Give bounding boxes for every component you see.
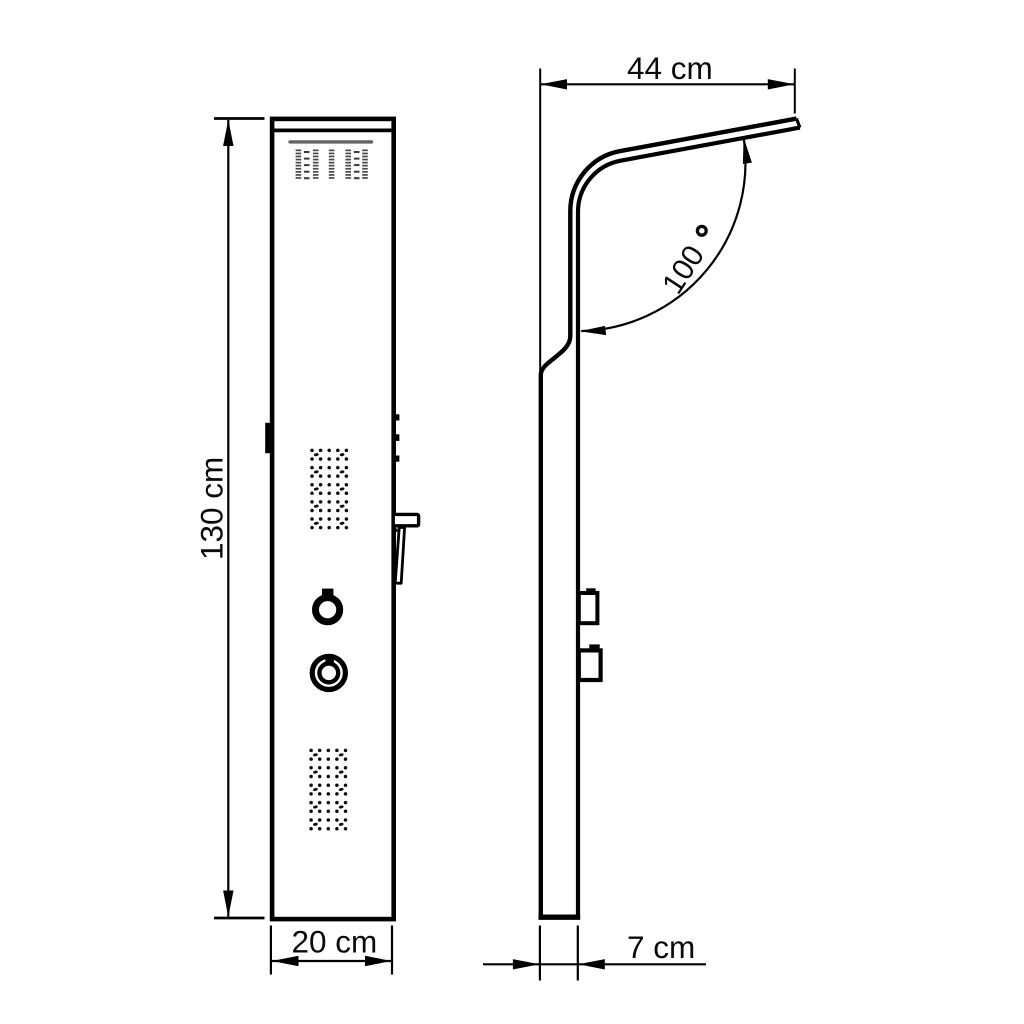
svg-text:130 cm: 130 cm (193, 457, 229, 560)
svg-text:20 cm: 20 cm (292, 924, 378, 960)
svg-text:44 cm: 44 cm (627, 50, 713, 86)
svg-text:7 cm: 7 cm (627, 929, 695, 965)
